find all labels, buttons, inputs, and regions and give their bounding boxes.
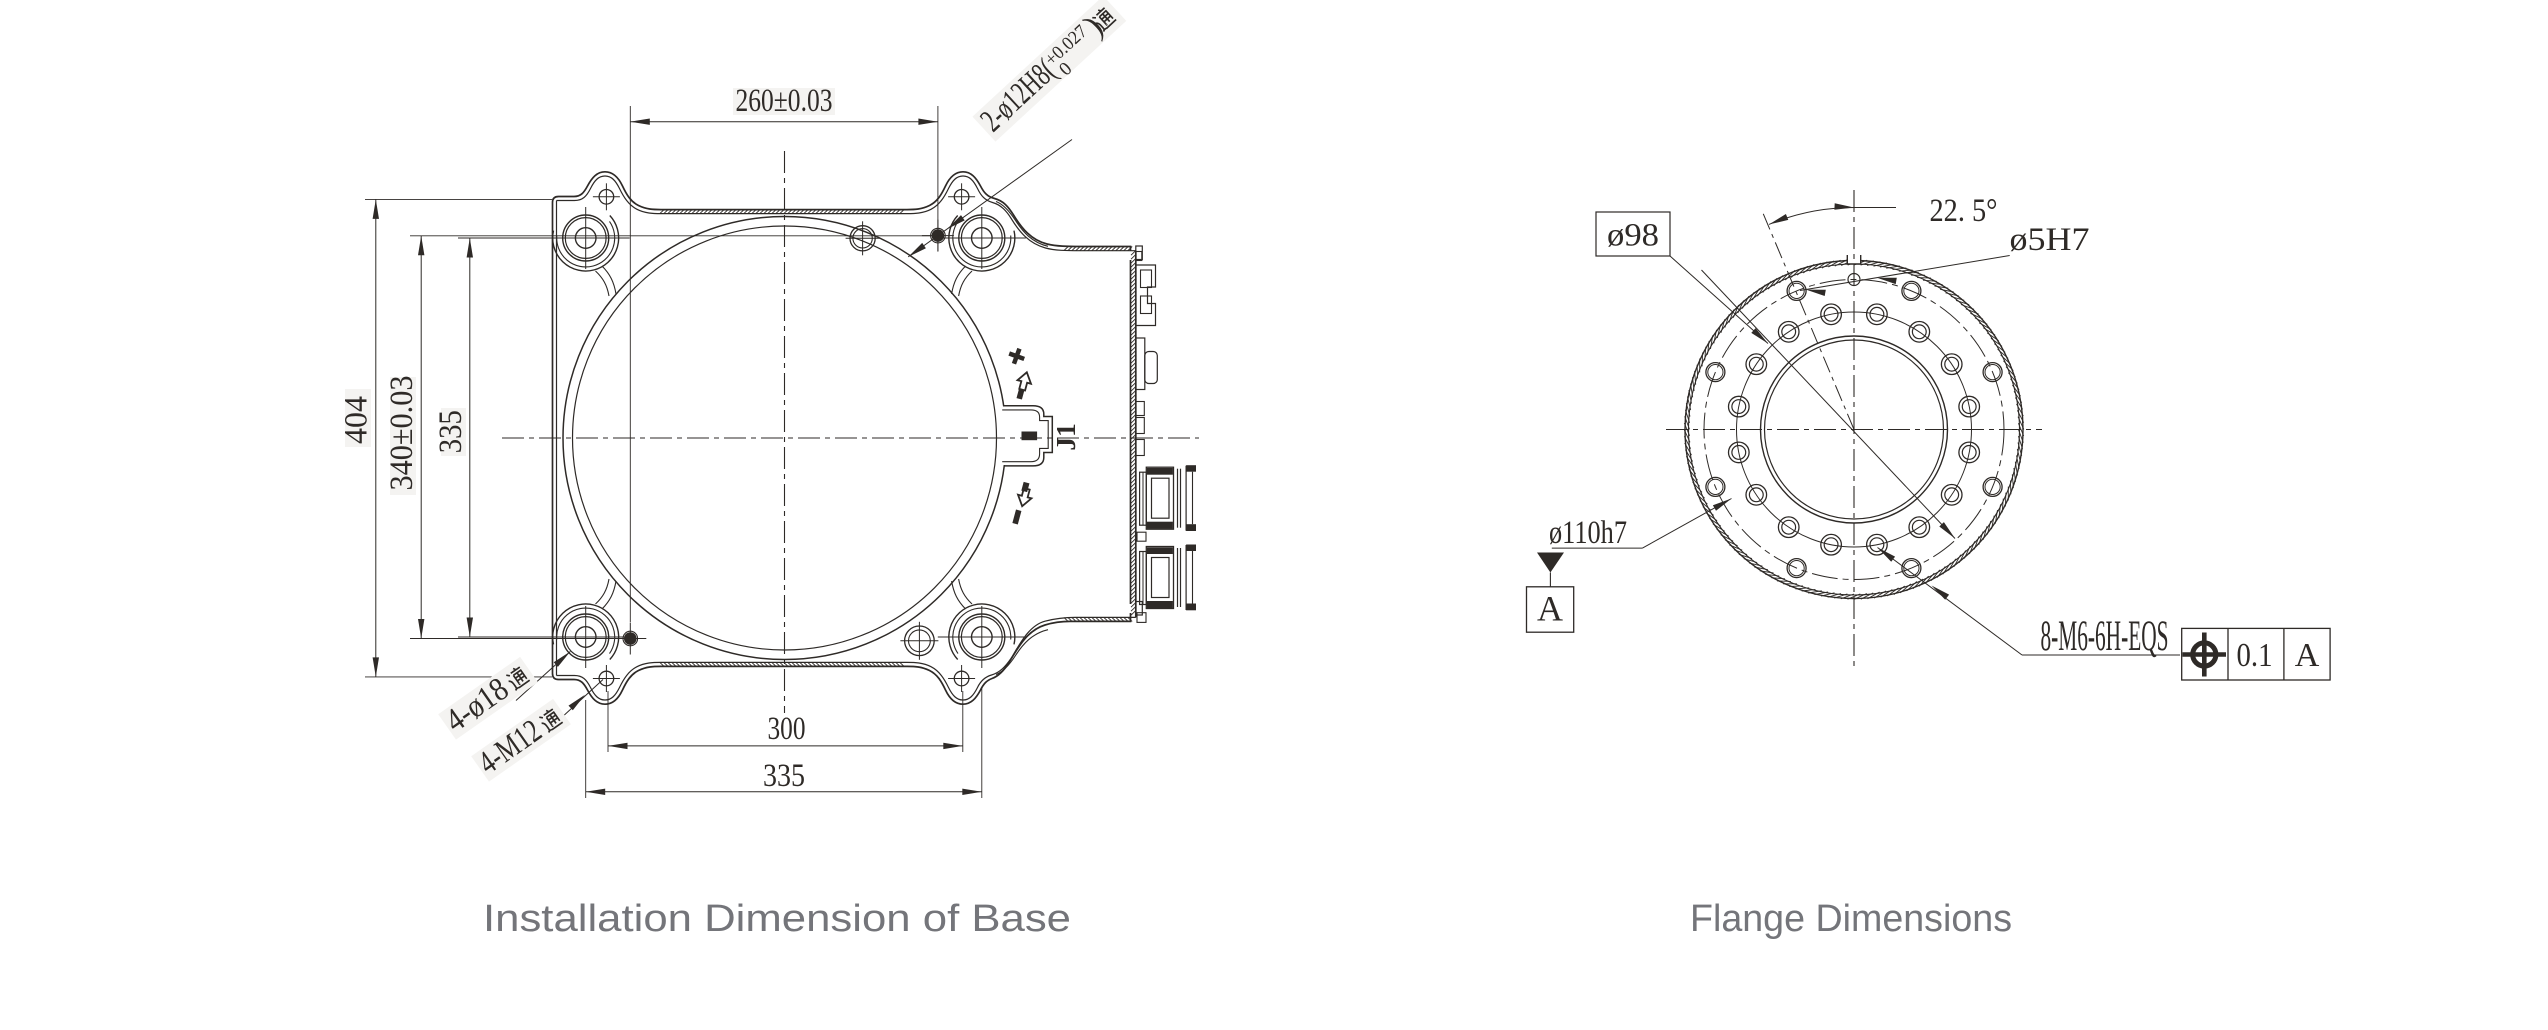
svg-text:A: A <box>2295 637 2320 674</box>
svg-text:Flange Dimensions: Flange Dimensions <box>1690 898 2012 940</box>
svg-text:8-M6-6H-EQS: 8-M6-6H-EQS <box>2041 613 2169 660</box>
svg-text:300: 300 <box>768 711 806 747</box>
svg-text:0.1: 0.1 <box>2237 637 2273 674</box>
svg-text:335: 335 <box>763 758 805 794</box>
svg-text:335: 335 <box>433 410 469 453</box>
svg-text:ø98: ø98 <box>1607 218 1659 254</box>
svg-text:404: 404 <box>339 396 375 444</box>
svg-text:260±0.03: 260±0.03 <box>736 83 833 119</box>
svg-text:340±0.03: 340±0.03 <box>384 376 420 491</box>
svg-text:ø5H7: ø5H7 <box>2010 222 2090 258</box>
svg-text:22. 5°: 22. 5° <box>1930 193 1998 229</box>
svg-text:A: A <box>1537 589 1563 629</box>
svg-text:Installation Dimension of Base: Installation Dimension of Base <box>483 898 1071 940</box>
svg-text:ø110h7: ø110h7 <box>1549 515 1627 551</box>
svg-text:J1: J1 <box>1050 423 1081 451</box>
